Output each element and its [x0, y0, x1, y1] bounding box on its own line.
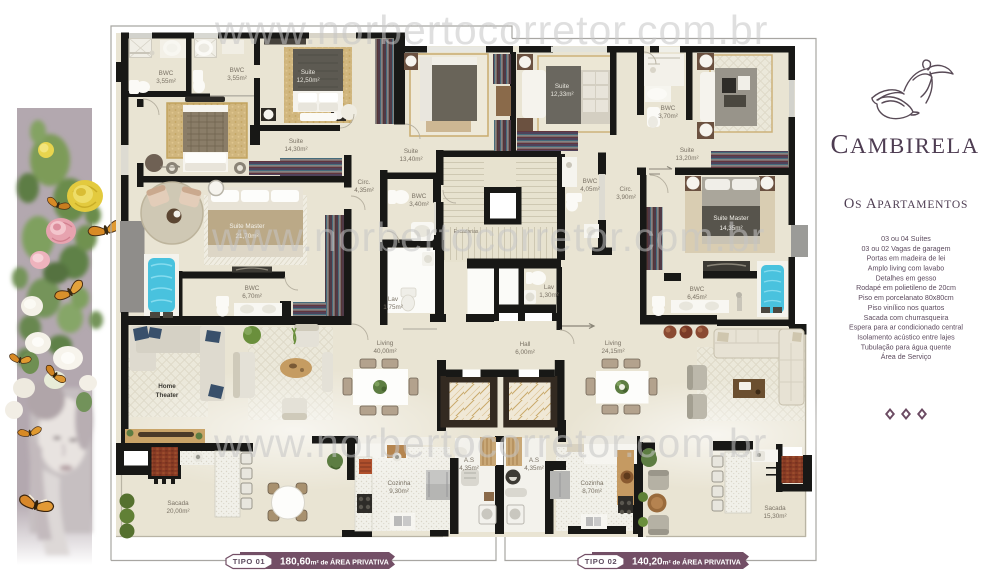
svg-text:Sacada: Sacada	[764, 505, 786, 512]
svg-text:BWC: BWC	[690, 286, 705, 293]
svg-text:BWC: BWC	[583, 178, 598, 185]
svg-text:Portas em madeira de lei: Portas em madeira de lei	[867, 255, 946, 263]
svg-text:Suite: Suite	[555, 83, 570, 90]
svg-text:Cozinha: Cozinha	[387, 480, 411, 487]
svg-text:TIPO 02: TIPO 02	[585, 557, 617, 566]
svg-text:3,90m²: 3,90m²	[616, 194, 636, 201]
svg-text:Tubulação para água quente: Tubulação para água quente	[861, 343, 952, 351]
svg-text:Sacada com churrasqueira: Sacada com churrasqueira	[864, 314, 949, 322]
svg-text:Piso vinílico nos quartos: Piso vinílico nos quartos	[868, 304, 945, 312]
svg-text:Lav: Lav	[544, 284, 555, 291]
svg-text:Suite: Suite	[680, 147, 695, 154]
svg-text:40,00m²: 40,00m²	[373, 348, 396, 355]
svg-text:Área de Serviço: Área de Serviço	[881, 352, 932, 361]
svg-text:www.norbertocorretor.com.br: www.norbertocorretor.com.br	[214, 7, 768, 53]
svg-text:Rodapé em polietileno de 20cm: Rodapé em polietileno de 20cm	[856, 284, 956, 292]
svg-text:CAMBIRELA: CAMBIRELA	[830, 129, 979, 159]
svg-text:3,70m²: 3,70m²	[658, 113, 678, 120]
svg-text:Lav: Lav	[388, 296, 399, 303]
svg-text:15,30m²: 15,30m²	[763, 513, 786, 520]
svg-text:03 ou 04 Suítes: 03 ou 04 Suítes	[881, 235, 931, 243]
svg-text:Circ.: Circ.	[620, 186, 633, 193]
svg-text:1,75m²: 1,75m²	[383, 304, 403, 311]
svg-text:Detalhes em gesso: Detalhes em gesso	[876, 274, 937, 282]
svg-text:Cozinha: Cozinha	[580, 480, 604, 487]
svg-text:1,30m²: 1,30m²	[539, 292, 559, 299]
svg-text:12,50m²: 12,50m²	[296, 77, 319, 84]
svg-text:4,35m²: 4,35m²	[459, 465, 479, 472]
svg-text:Isolamento acústico entre laje: Isolamento acústico entre lajes	[857, 334, 955, 342]
svg-text:14,30m²: 14,30m²	[284, 146, 307, 153]
svg-text:20,00m²: 20,00m²	[166, 508, 189, 515]
svg-text:8,70m²: 8,70m²	[582, 488, 602, 495]
svg-text:Hall: Hall	[520, 341, 531, 348]
svg-text:BWC: BWC	[412, 193, 427, 200]
svg-text:BWC: BWC	[661, 105, 676, 112]
svg-text:6,00m²: 6,00m²	[515, 349, 535, 356]
svg-text:180,60m² de ÁREA PRIVATIVA: 180,60m² de ÁREA PRIVATIVA	[280, 557, 389, 568]
svg-text:Espera para ar condicionado ce: Espera para ar condicionado central	[849, 324, 963, 332]
svg-text:Living: Living	[377, 340, 394, 347]
svg-text:www.norbertocorretor.com.br: www.norbertocorretor.com.br	[213, 420, 767, 466]
svg-text:4,35m²: 4,35m²	[524, 465, 544, 472]
svg-text:12,33m²: 12,33m²	[550, 91, 573, 98]
svg-text:Piso em porcelanato 80x80cm: Piso em porcelanato 80x80cm	[858, 294, 954, 302]
svg-text:3,55m²: 3,55m²	[156, 78, 176, 85]
svg-text:4,05m²: 4,05m²	[580, 186, 600, 193]
svg-text:Suite: Suite	[301, 69, 316, 76]
svg-text:Suite: Suite	[404, 148, 419, 155]
svg-text:Theater: Theater	[156, 392, 179, 399]
svg-text:www.norbertocorretor.com.br: www.norbertocorretor.com.br	[211, 214, 765, 260]
svg-text:Living: Living	[605, 340, 622, 347]
svg-text:13,20m²: 13,20m²	[675, 155, 698, 162]
svg-text:Sacada: Sacada	[167, 500, 189, 507]
svg-text:Amplo living com lavabo: Amplo living com lavabo	[868, 265, 945, 273]
svg-text:OS APARTAMENTOS: OS APARTAMENTOS	[844, 196, 968, 212]
svg-text:13,40m²: 13,40m²	[399, 156, 422, 163]
svg-text:Home: Home	[158, 383, 176, 390]
svg-text:TIPO 01: TIPO 01	[233, 557, 266, 566]
svg-text:6,70m²: 6,70m²	[242, 293, 262, 300]
svg-text:4,35m²: 4,35m²	[354, 187, 374, 194]
svg-text:6,45m²: 6,45m²	[687, 294, 707, 301]
svg-text:9,30m²: 9,30m²	[389, 488, 409, 495]
svg-text:24,15m²: 24,15m²	[601, 348, 624, 355]
svg-text:3,40m²: 3,40m²	[409, 201, 429, 208]
svg-text:BWC: BWC	[159, 70, 174, 77]
svg-text:03 ou 02 Vagas de garagem: 03 ou 02 Vagas de garagem	[861, 245, 950, 253]
svg-text:3,55m²: 3,55m²	[227, 75, 247, 82]
svg-text:Circ.: Circ.	[358, 179, 371, 186]
svg-text:BWC: BWC	[230, 67, 245, 74]
svg-text:BWC: BWC	[245, 285, 260, 292]
svg-text:140,20m² de ÁREA PRIVATIVA: 140,20m² de ÁREA PRIVATIVA	[632, 557, 741, 568]
svg-text:Suite: Suite	[289, 138, 304, 145]
